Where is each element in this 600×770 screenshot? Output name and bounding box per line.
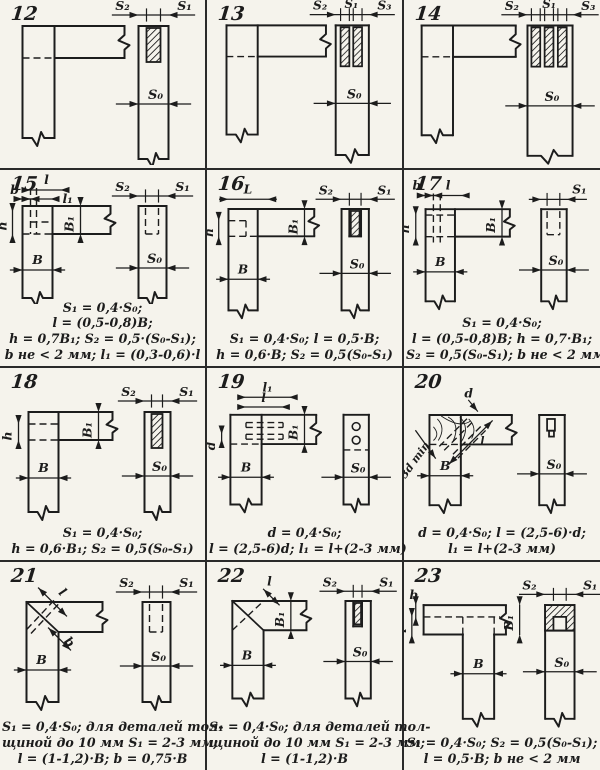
formula-line: S₁ = 0,4·S₀; S₂ = 0,5(S₀-S₁); (406, 735, 598, 751)
formula-line: l₁ = l+(2-3 мм) (406, 541, 598, 557)
formula-block: d = 0,4·S₀; l = (2,5-6)·d;l₁ = l+(2-3 мм… (406, 525, 598, 557)
dim-label: l (44, 172, 49, 187)
dim-label: S₀ (350, 256, 365, 271)
joint-cell-22: lB₁BS₂S₁S₀22S₁ = 0,4·S₀; для деталей тол… (207, 562, 404, 770)
dim-label: B (31, 252, 43, 267)
formula-line: l = 0,5·B; b не < 2 мм (406, 751, 598, 767)
dim-label: B (472, 656, 483, 671)
dim-label: S₁ (179, 575, 194, 590)
formula-line: l = (1-1,2)·B; b = 0,75·B (2, 751, 203, 767)
joint-cell-23: blB₁BS₂S₁S₀23S₁ = 0,4·S₀; S₂ = 0,5(S₀-S₁… (404, 562, 600, 770)
cell-number: 12 (10, 3, 39, 25)
dim-label: 3d min (404, 439, 433, 481)
dim-label: l (446, 178, 451, 193)
page: S₂S₁S₀12S₂S₃S₁S₀13S₂S₃S₁S₀14ll₁bhB₁BS₂S₁… (0, 0, 600, 770)
dim-label: S₀ (347, 86, 362, 101)
dim-label: S₂ (115, 0, 130, 13)
cell-number: 22 (217, 565, 246, 587)
dim-label: B₁ (483, 217, 498, 234)
dim-label: S₂ (115, 179, 130, 194)
dim-label: S₀ (148, 88, 163, 103)
dim-label: S₁ (175, 179, 190, 194)
formula-block: S₁ = 0,4·S₀; для деталей тол-щиной до 10… (2, 719, 203, 767)
dim-label: B (241, 649, 252, 663)
dim-label: S₀ (353, 645, 368, 660)
dim-label: S₀ (554, 656, 569, 671)
cell-number: 16 (217, 173, 246, 195)
cell-number: 17 (414, 173, 443, 195)
dim-label: l (480, 434, 484, 447)
joint-cell-19: l₁ldB₁BS₀19d = 0,4·S₀;l = (2,5-6)d; l₁ =… (207, 368, 404, 562)
dim-label: S₃ (377, 0, 391, 13)
dim-label: b (61, 633, 78, 650)
dim-label: S₁ (345, 0, 359, 11)
joint-cell-14: S₂S₃S₁S₀14 (404, 0, 600, 170)
cell-number: 14 (414, 3, 443, 25)
formula-line: S₁ = 0,4·S₀; для деталей тол- (2, 719, 203, 735)
formula-block: S₁ = 0,4·S₀; S₂ = 0,5(S₀-S₁);l = 0,5·B; … (406, 735, 598, 767)
dim-label: S₂ (323, 575, 337, 589)
formula-line: S₁ = 0,4·S₀; (2, 300, 203, 316)
dim-label: S₁ (542, 0, 556, 11)
joint-cell-21: lbBS₂S₁S₀21S₁ = 0,4·S₀; для деталей тол-… (0, 562, 207, 770)
formula-block: S₁ = 0,4·S₀; для деталей тол-щиной до 10… (209, 719, 400, 767)
dim-label: B (434, 254, 445, 269)
joint-cell-18: hB₁BS₂S₁S₀18S₁ = 0,4·S₀;h = 0,6·B₁; S₂ =… (0, 368, 207, 562)
formula-line: h = 0,6·B₁; S₂ = 0,5(S₀-S₁) (2, 541, 203, 557)
dim-label: h (0, 431, 15, 440)
dim-label: l (261, 391, 266, 405)
dim-label: S₁ (377, 183, 391, 197)
dim-label: S₀ (152, 460, 167, 475)
dim-label: S₃ (581, 0, 596, 13)
dim-label: B₁ (287, 425, 301, 442)
joints-table: S₂S₁S₀12S₂S₃S₁S₀13S₂S₃S₁S₀14ll₁bhB₁BS₂S₁… (0, 0, 600, 770)
formula-line: b не < 2 мм; l₁ = (0,3-0,6)·l (2, 347, 203, 363)
dim-label: b (410, 587, 419, 602)
cell-number: 15 (10, 173, 39, 195)
dim-label: S₂ (319, 183, 333, 197)
dim-label: B (35, 652, 47, 667)
formula-line: S₂ = 0,5(S₀-S₁); b не < 2 мм (406, 347, 598, 363)
formula-line: S₁ = 0,4·S₀; (2, 525, 203, 541)
dim-label: S₂ (313, 0, 327, 13)
dim-label: d (464, 385, 473, 400)
dim-label: S₂ (121, 384, 136, 399)
dim-label: S₁ (572, 182, 586, 197)
dim-label: S₁ (583, 577, 597, 592)
dim-label: S₀ (547, 458, 562, 473)
dim-label: S₂ (505, 0, 519, 13)
formula-block: S₁ = 0,4·S₀;h = 0,6·B₁; S₂ = 0,5(S₀-S₁) (2, 525, 203, 557)
formula-line: S₁ = 0,4·S₀; для деталей тол- (209, 719, 400, 735)
dim-label: B (240, 460, 251, 474)
cell-number: 18 (10, 371, 39, 393)
cell-number: 21 (10, 565, 39, 587)
dim-label: S₀ (545, 90, 560, 105)
formula-line: S₁ = 0,4·S₀; (406, 315, 598, 331)
cell-number: 20 (414, 371, 443, 393)
formula-block: d = 0,4·S₀;l = (2,5-6)d; l₁ = l+(2-3 мм) (209, 525, 400, 557)
dim-label: h (404, 224, 412, 233)
formula-line: l = (0,5-0,8)B; h = 0,7·B₁; (406, 331, 598, 347)
formula-line: d = 0,4·S₀; (209, 525, 400, 541)
dim-label: B (37, 460, 49, 475)
dim-label: B (237, 262, 248, 276)
dim-label: B (439, 458, 450, 473)
formula-line: l = (0,5-0,8)B; (2, 315, 203, 331)
dim-label: S₀ (351, 460, 366, 475)
formula-line: l = (2,5-6)d; l₁ = l+(2-3 мм) (209, 541, 400, 557)
joint-cell-12: S₂S₁S₀12 (0, 0, 207, 170)
formula-line: S₁ = 0,4·S₀; l = 0,5·B; (209, 331, 400, 347)
formula-line: h = 0,7B₁; S₂ = 0,5·(S₀-S₁); (2, 331, 203, 347)
formula-block: S₁ = 0,4·S₀;l = (0,5-0,8)B;h = 0,7B₁; S₂… (2, 300, 203, 363)
cell-number: 23 (414, 565, 443, 587)
cell-number: 13 (217, 3, 246, 25)
dim-label: S₁ (379, 575, 393, 589)
joint-cell-15: ll₁bhB₁BS₂S₁S₀15S₁ = 0,4·S₀;l = (0,5-0,8… (0, 170, 207, 368)
joint-cell-20: d3d minlBS₀20d = 0,4·S₀; l = (2,5-6)·d;l… (404, 368, 600, 562)
dim-label: S₁ (177, 0, 192, 13)
joint-cell-13: S₂S₃S₁S₀13 (207, 0, 404, 170)
dim-label: l (267, 574, 272, 588)
dim-label: h (207, 228, 216, 237)
dim-label: S₂ (119, 575, 134, 590)
dim-label: h (0, 221, 10, 230)
dim-label: B₁ (501, 615, 516, 632)
dim-label: S₀ (147, 252, 162, 267)
dim-label: B₁ (62, 216, 77, 233)
dim-label: d (207, 441, 218, 450)
dim-label: S₀ (151, 650, 166, 665)
formula-block: S₁ = 0,4·S₀;l = (0,5-0,8)B; h = 0,7·B₁;S… (406, 315, 598, 363)
formula-line: d = 0,4·S₀; l = (2,5-6)·d; (406, 525, 598, 541)
formula-line: h = 0,6·B; S₂ = 0,5(S₀-S₁) (209, 347, 400, 363)
dim-label: B₁ (80, 422, 95, 439)
cell-number: 19 (217, 371, 246, 393)
dim-label: l₁ (63, 191, 73, 206)
dim-label: l (56, 585, 70, 599)
dim-label: B₁ (287, 219, 301, 236)
formula-line: l = (1-1,2)·B (209, 751, 400, 767)
dim-label: S₁ (179, 384, 194, 399)
dim-label: S₂ (522, 577, 536, 592)
dim-label: B₁ (273, 612, 287, 629)
joint-drawing: blB₁BS₂S₁S₀ (404, 562, 600, 730)
formula-block: S₁ = 0,4·S₀; l = 0,5·B;h = 0,6·B; S₂ = 0… (209, 331, 400, 363)
formula-line: щиной до 10 мм S₁ = 2-3 мм; (2, 735, 203, 751)
formula-line: щиной до 10 мм S₁ = 2-3 мм; (209, 735, 400, 751)
dim-label: S₀ (549, 254, 564, 269)
dim-label: l (404, 628, 409, 633)
joint-cell-17: lbhB₁BS₁S₀17S₁ = 0,4·S₀;l = (0,5-0,8)B; … (404, 170, 600, 368)
joint-cell-16: LhB₁BS₂S₁S₀16S₁ = 0,4·S₀; l = 0,5·B;h = … (207, 170, 404, 368)
